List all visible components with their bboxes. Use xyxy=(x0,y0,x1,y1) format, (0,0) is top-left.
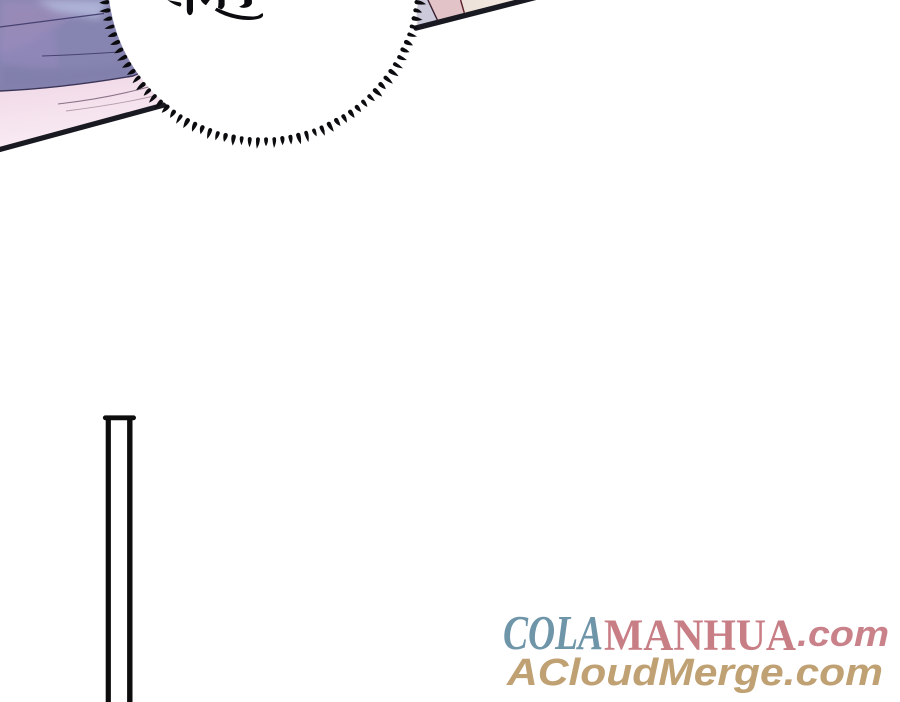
svg-text:ACloudMerge.com: ACloudMerge.com xyxy=(506,652,883,694)
svg-text:.com: .com xyxy=(797,613,889,654)
